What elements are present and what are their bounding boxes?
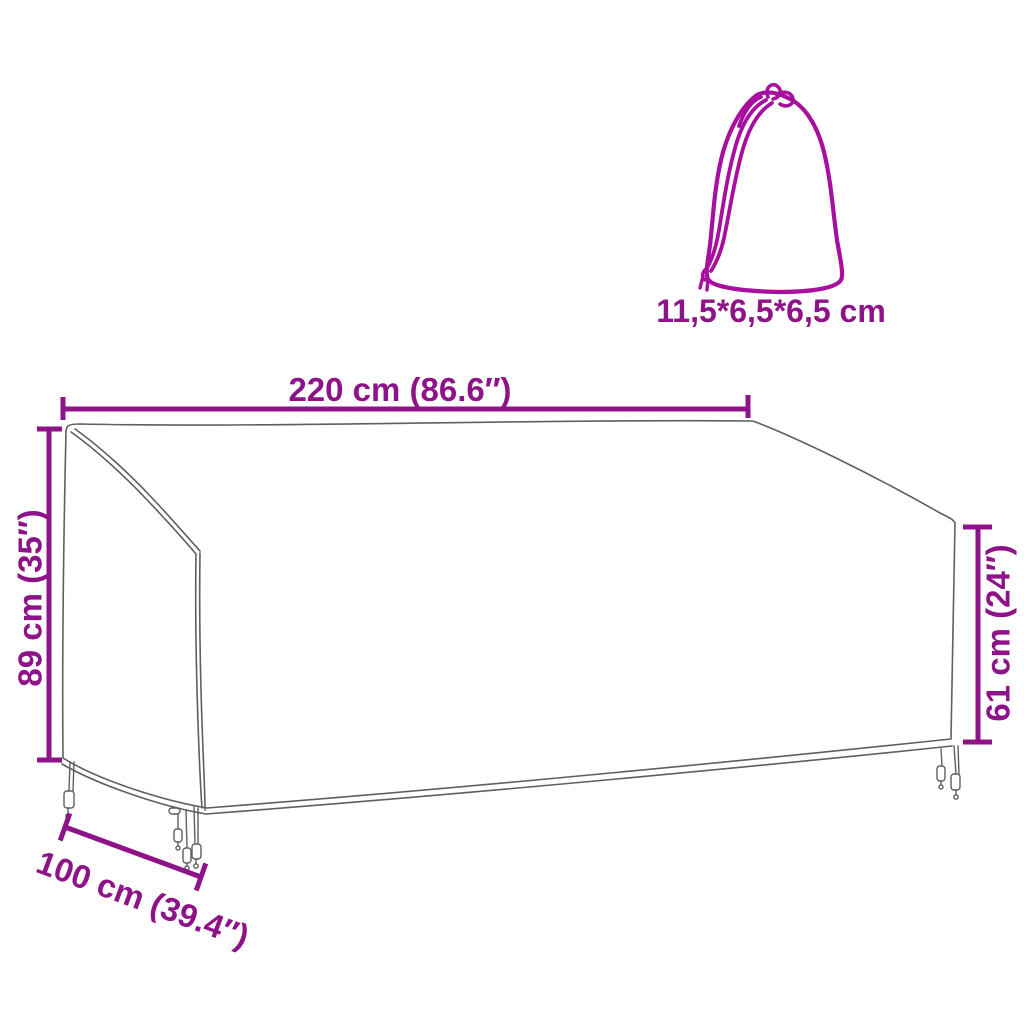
cover-outline — [63, 421, 955, 808]
depth-dimension-label: 100 cm (39.4″) — [32, 843, 254, 955]
bag-size-label: 11,5*6,5*6,5 cm — [656, 293, 886, 329]
product-dimension-diagram: 220 cm (86.6″) 89 cm (35″) 61 cm (24″) 1… — [0, 0, 1024, 1024]
strap-front-left-cluster — [169, 807, 201, 870]
back-height-dimension-label: 89 cm (35″) — [12, 509, 49, 686]
strap-right-corner — [937, 746, 960, 799]
front-height-dimension-label: 61 cm (24″) — [980, 544, 1017, 721]
storage-bag-drawing — [700, 85, 842, 292]
bench-cover-drawing — [62, 421, 960, 870]
width-dimension-label: 220 cm (86.6″) — [288, 371, 511, 408]
